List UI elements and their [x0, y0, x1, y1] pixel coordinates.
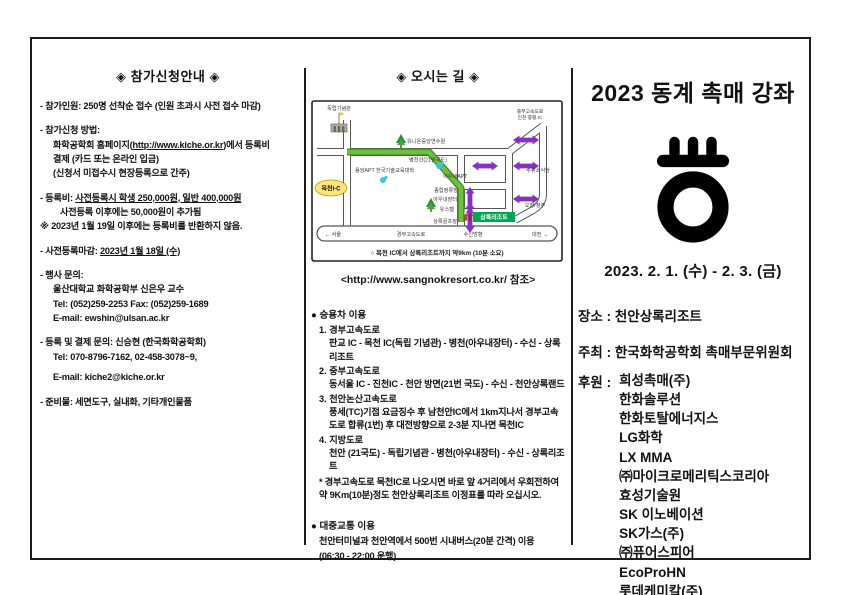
gyeongbu-label: 경부고속도로 — [397, 230, 426, 238]
venue-line: 장소 : 천안상록리조트 — [578, 305, 808, 325]
gas-label: 주유소식당 — [526, 166, 550, 174]
apply-line2: 결제 (카드 또는 온라인 입금) — [40, 153, 296, 166]
sponsor-item: 효성기술원 — [619, 486, 769, 505]
apply-line1-pre: 화학공학회 홈페이지( — [53, 140, 132, 150]
expressway-band — [317, 226, 557, 241]
sponsor-item: SK가스(주) — [619, 524, 769, 543]
host-line: 주최 : 한국화학공학회 촉매부문위원회 — [578, 341, 808, 361]
location-map: 목천I-C 상록리조트 독립기념관 유니온중앙연수원 병천선(21번국도) 용암… — [311, 100, 565, 267]
transit-line1: 천안터미널과 천안역에서 500번 시내버스(20분 간격) 이용 — [311, 535, 565, 548]
route4-body: 천안 (21국도) - 독립기념관 - 병천(아우내장터) - 수신 - 상록리… — [311, 447, 565, 474]
sponsor-item: LX MMA — [619, 448, 769, 467]
deadline-date: 2023년 1월 18일 (수) — [100, 246, 180, 256]
route4-head: 4. 지방도로 — [311, 434, 565, 447]
column-divider-left — [304, 68, 306, 545]
car-section-head: ● 승용차 이용 — [311, 307, 565, 321]
payment-contact-head: - 등록 및 결제 문의: 신승현 (한국화학공학회) — [40, 336, 296, 349]
event-contact-name: 울산대학교 화학공학부 신은우 교수 — [40, 283, 296, 296]
kiche-url: http://www.kiche.or.kr — [132, 140, 223, 150]
host-label: 주최 : — [578, 341, 611, 361]
sponsor-item: 롯데케미칼(주) — [619, 582, 769, 595]
event-contact-tel: Tel: (052)259-2253 Fax: (052)259-1689 — [40, 298, 296, 311]
sponsor-item: 한화토탈에너지스 — [619, 409, 769, 428]
transit-line2: (06:30 - 22:00 운행) — [311, 550, 565, 563]
sponsor-item: 희성촉매(주) — [619, 371, 769, 390]
event-contact-email: E-mail: ewshin@ulsan.ac.kr — [40, 312, 296, 325]
sponsor-item: EcoProHN — [619, 563, 769, 582]
directions-title: ◈ 오시는 길 ◈ — [311, 66, 565, 85]
deadline-label: - 사전등록마감: — [40, 246, 100, 256]
map-caption: ○ 목천 IC에서 상록리조트까지 약9km (10분 소요) — [370, 248, 503, 257]
sponsor-label: 후원 : — [578, 371, 611, 595]
mokcheon-ic-label: 목천I-C — [321, 184, 341, 192]
golf-label: 상록골프장 — [433, 217, 457, 225]
apply-line1: 화학공학회 홈페이지(http://www.kiche.or.kr)에서 등록비 — [40, 139, 296, 152]
hostel-label: 유스텔 — [440, 205, 455, 213]
fee-label: - 등록비: — [40, 193, 75, 203]
sponsor-item: SK 이노베이션 — [619, 505, 769, 524]
supplies-line: - 준비물: 세면도구, 실내화, 기타개인물품 — [40, 396, 296, 409]
attendee-line: - 참가인원: 250명 선착순 접수 (인원 초과시 사전 접수 마감) — [40, 100, 296, 113]
fee-amounts: 사전등록시 학생 250,000원, 일반 400,000원 — [75, 193, 241, 203]
catalysis-logo-icon — [645, 132, 741, 244]
registration-column: ◈ 참가신청안내 ◈ - 참가인원: 250명 선착순 접수 (인원 초과시 사… — [40, 66, 296, 410]
payment-contact-tel: Tel: 070-8796-7162, 02-458-3078~9, — [40, 351, 296, 364]
ochang-label: 오창/청주 — [525, 201, 546, 209]
event-contact-head: - 행사 문의: — [40, 269, 296, 282]
route2-body: 동서울 IC - 진천IC - 천안 방면(21번 국도) - 수신 - 천안상… — [311, 378, 565, 391]
fee-note: ※ 2023년 1월 19일 이후에는 등록비를 반환하지 않음. — [40, 220, 296, 233]
resort-label: 상록리조트 — [480, 213, 508, 221]
route-note: * 경부고속도로 목천IC로 나오시면 바로 앞 4거리에서 우회전하여 약 9… — [311, 476, 565, 503]
host-value: 한국화학공학회 촉매부문위원회 — [615, 345, 793, 360]
deadline-line: - 사전등록마감: 2023년 1월 18일 (수) — [40, 245, 296, 258]
susin-label: 수신방향 — [463, 230, 482, 238]
registration-title: ◈ 참가신청안내 ◈ — [40, 66, 296, 85]
sponsor-item: ㈜퓨어스피어 — [619, 543, 769, 562]
venue-label: 장소 : — [578, 305, 611, 325]
apt-univ-label: 용암APT 한국기술교육대학 — [355, 166, 414, 174]
union-center-label: 유니온중앙연수원 — [407, 137, 445, 145]
jungbu-label-2: 진천 증평 IC — [517, 114, 543, 121]
route21-label: 병천선(21번국도) — [409, 156, 447, 164]
sponsor-item: ㈜마이크로메리틱스코리아 — [619, 467, 769, 486]
payment-contact-email: E-mail: kiche2@kiche.or.kr — [40, 371, 296, 384]
daejeon-label: 대전 → — [532, 230, 548, 238]
event-column: 2023 동계 촉매 강좌 2023. 2. 1. (수) - 2. 3. (금… — [578, 66, 808, 595]
logo-row — [578, 132, 808, 244]
route1-head: 1. 경부고속도로 — [311, 324, 565, 337]
event-dates: 2023. 2. 1. (수) - 2. 3. (금) — [578, 260, 808, 281]
route3-head: 3. 천안논산고속도로 — [311, 393, 565, 406]
venue-value: 천안상록리조트 — [615, 309, 702, 324]
map-svg: 목천I-C 상록리조트 독립기념관 유니온중앙연수원 병천선(21번국도) 용암… — [311, 100, 563, 262]
jonghap-label: 종합정류장 — [434, 186, 458, 194]
sponsor-block: 후원 : 희성촉매(주) 한화솔루션 한화토탈에너지스 LG화학 LX MMA … — [578, 371, 808, 595]
flyer-page: ◈ 참가신청안내 ◈ - 참가인원: 250명 선착순 접수 (인원 초과시 사… — [0, 0, 841, 595]
transit-section-head: ● 대중교통 이용 — [311, 518, 565, 532]
fee-line2: 사전등록 이후에는 50,000원이 추가됨 — [40, 206, 296, 219]
apply-line3: (신청서 미접수시 현장등록으로 간주) — [40, 167, 296, 180]
jungbu-label-1: 중부고속도로 — [517, 108, 544, 115]
sponsor-item: LG화학 — [619, 428, 769, 447]
directions-column: ◈ 오시는 길 ◈ — [311, 66, 565, 564]
route2-head: 2. 중부고속도로 — [311, 365, 565, 378]
apply-head: - 참가신청 방법: — [40, 124, 296, 137]
seoul-label: ← 서울 — [325, 230, 341, 238]
sponsor-list: 희성촉매(주) 한화솔루션 한화토탈에너지스 LG화학 LX MMA ㈜마이크로… — [619, 371, 769, 595]
route1-body: 판교 IC - 목천 IC(독립 기념관) - 병천(아우내장터) - 수신 -… — [311, 337, 565, 364]
independence-hall-label: 독립기념관 — [327, 104, 351, 112]
route3-body: 풍세(TC)기점 요금징수 후 남천안IC에서 1km지나서 경부고속도로 합류… — [311, 406, 565, 433]
column-divider-right — [571, 68, 573, 545]
resort-url: <http://www.sangnokresort.co.kr/ 참조> — [311, 272, 565, 287]
awnae-apt-label: 아우내APT — [443, 172, 468, 180]
apply-line1-post: )에서 등록비 — [223, 140, 269, 150]
awnae-market-label: 아우내장터 — [433, 195, 457, 203]
sponsor-item: 한화솔루션 — [619, 390, 769, 409]
event-title: 2023 동계 촉매 강좌 — [578, 74, 808, 108]
fee-line: - 등록비: 사전등록시 학생 250,000원, 일반 400,000원 — [40, 192, 296, 205]
